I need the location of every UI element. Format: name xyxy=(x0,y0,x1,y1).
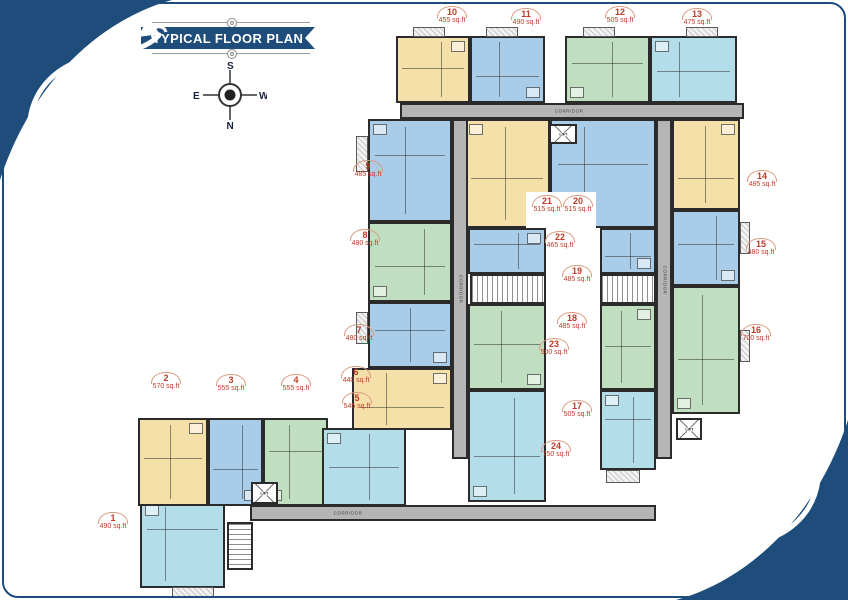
balcony xyxy=(583,27,615,37)
staircase xyxy=(470,274,546,304)
compass-west: W xyxy=(259,91,267,102)
unit-22 xyxy=(468,228,546,274)
unit-19 xyxy=(600,228,656,274)
unit-label-5: 5545 sq.ft xyxy=(333,394,381,411)
unit-label-21: 21515 sq.ft xyxy=(523,197,571,214)
unit-label-12: 12505 sq.ft xyxy=(596,8,644,25)
unit-label-22: 22465 sq.ft xyxy=(536,233,584,250)
compass-rose: S N E W xyxy=(193,60,267,130)
compass-south: S xyxy=(227,61,234,72)
unit-label-19: 19485 sq.ft xyxy=(553,267,601,284)
balcony xyxy=(413,27,445,37)
balcony xyxy=(172,587,214,597)
unit-11 xyxy=(470,36,545,103)
unit-18 xyxy=(600,304,656,390)
title-ornament-bottom xyxy=(227,49,237,59)
balcony xyxy=(486,27,518,37)
balcony xyxy=(686,27,718,37)
unit-13 xyxy=(650,36,737,103)
compass-east: E xyxy=(193,91,200,102)
unit-14 xyxy=(672,119,740,210)
lift: LIFT xyxy=(251,482,278,504)
unit-5 xyxy=(322,428,406,506)
unit-label-6: 6440 sq.ft xyxy=(332,368,380,385)
unit-label-1: 1490 sq.ft xyxy=(89,514,137,531)
unit-10 xyxy=(396,36,470,103)
unit-label-24: 24750 sq.ft xyxy=(532,442,580,459)
unit-label-2: 2570 sq.ft xyxy=(142,374,190,391)
corner-ornament-bottom-right xyxy=(673,418,848,600)
title-ornament-top xyxy=(227,18,237,28)
unit-label-7: 7480 sq.ft xyxy=(335,326,383,343)
unit-2 xyxy=(138,418,208,506)
balcony xyxy=(606,470,640,483)
corridor: CORRIDOR xyxy=(250,505,656,521)
unit-1 xyxy=(140,500,225,588)
compass-north: N xyxy=(227,121,234,130)
floor-plan-page: { "title_banner": "TYPICAL FLOOR PLAN", … xyxy=(0,0,848,600)
corridor: CORRIDOR xyxy=(452,119,468,459)
staircase xyxy=(227,522,253,570)
unit-label-23: 23500 sq.ft xyxy=(530,340,578,357)
unit-16 xyxy=(672,286,740,414)
corridor: CORRIDOR xyxy=(400,103,744,119)
unit-label-18: 18485 sq.ft xyxy=(548,314,596,331)
unit-12 xyxy=(565,36,650,103)
unit-label-4: 4555 sq.ft xyxy=(272,376,320,393)
unit-label-11: 11490 sq.ft xyxy=(502,10,550,27)
corridor: CORRIDOR xyxy=(656,119,672,459)
unit-label-16: 16700 sq.ft xyxy=(732,326,780,343)
unit-label-8: 8480 sq.ft xyxy=(341,231,389,248)
unit-15 xyxy=(672,210,740,286)
unit-17 xyxy=(600,390,656,470)
unit-label-15: 15480 sq.ft xyxy=(737,240,785,257)
lift: LIFT xyxy=(549,124,577,144)
unit-label-3: 3555 sq.ft xyxy=(207,376,255,393)
unit-label-9: 9485 sq.ft xyxy=(344,162,392,179)
staircase xyxy=(600,274,656,304)
unit-label-13: 13475 sq.ft xyxy=(673,10,721,27)
unit-label-17: 17505 sq.ft xyxy=(553,402,601,419)
corner-ornament-top-left xyxy=(0,0,175,182)
unit-label-10: 10455 sq.ft xyxy=(428,8,476,25)
unit-label-14: 14485 sq.ft xyxy=(738,172,786,189)
